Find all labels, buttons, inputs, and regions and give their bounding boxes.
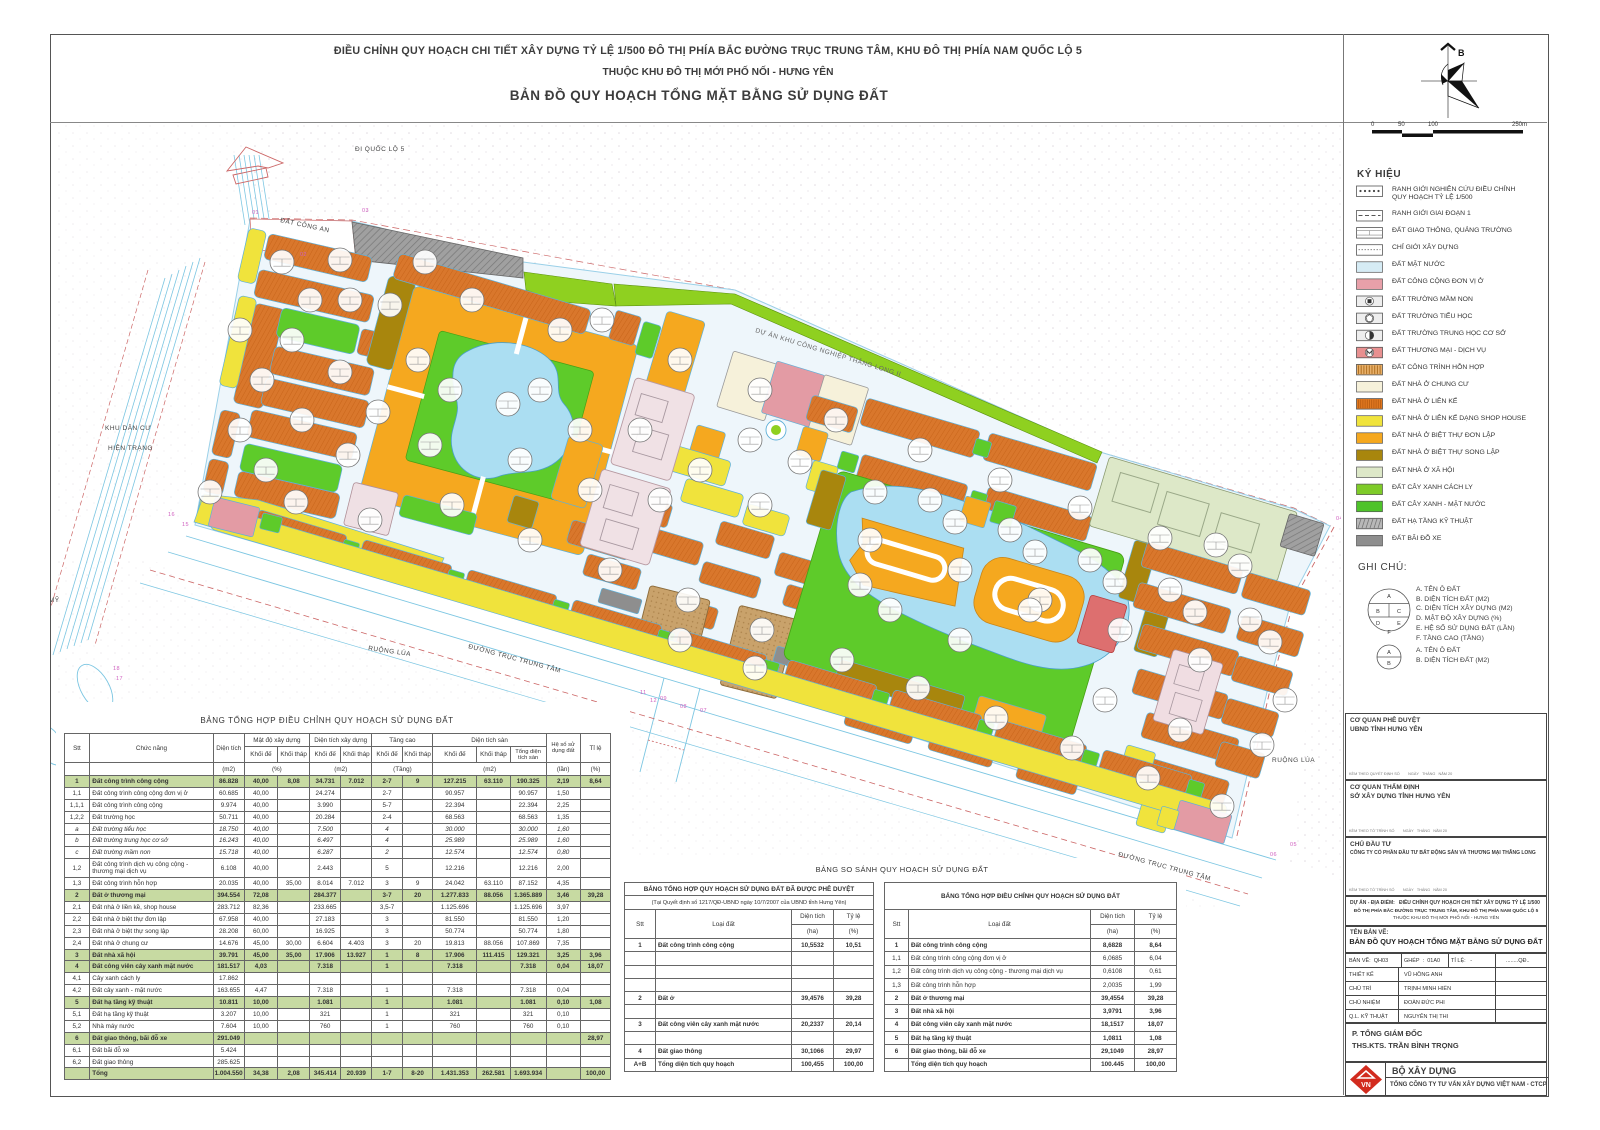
svg-text:D: D [1376, 621, 1380, 627]
svg-text:E: E [1397, 621, 1401, 627]
svg-text:C: C [1397, 609, 1401, 615]
svg-text:VN: VN [1361, 1082, 1371, 1089]
svg-text:B: B [1387, 661, 1391, 667]
svg-text:A: A [1387, 594, 1391, 600]
svg-text:B: B [1376, 609, 1380, 615]
svg-text:A: A [1387, 650, 1391, 656]
